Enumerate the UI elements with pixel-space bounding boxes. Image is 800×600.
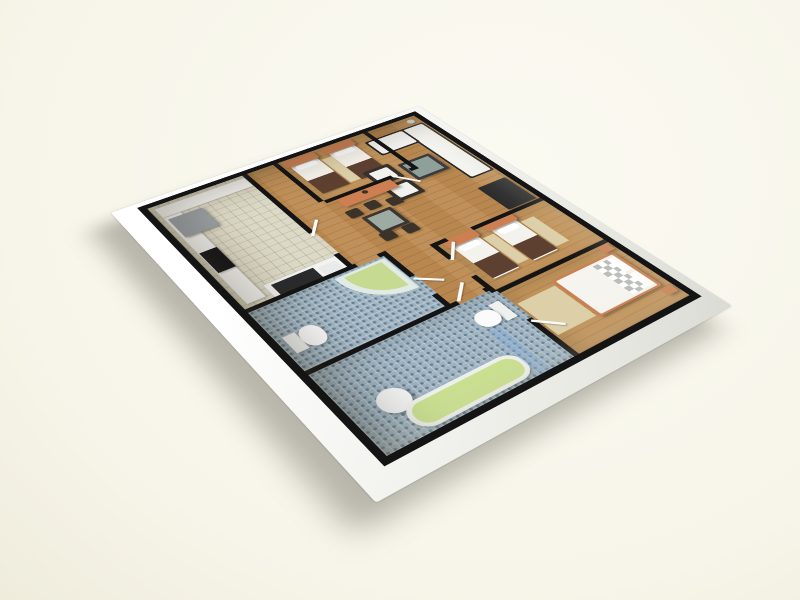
scene-background	[0, 0, 800, 600]
floor-plan	[137, 111, 702, 466]
building-exterior-walls	[111, 106, 732, 503]
